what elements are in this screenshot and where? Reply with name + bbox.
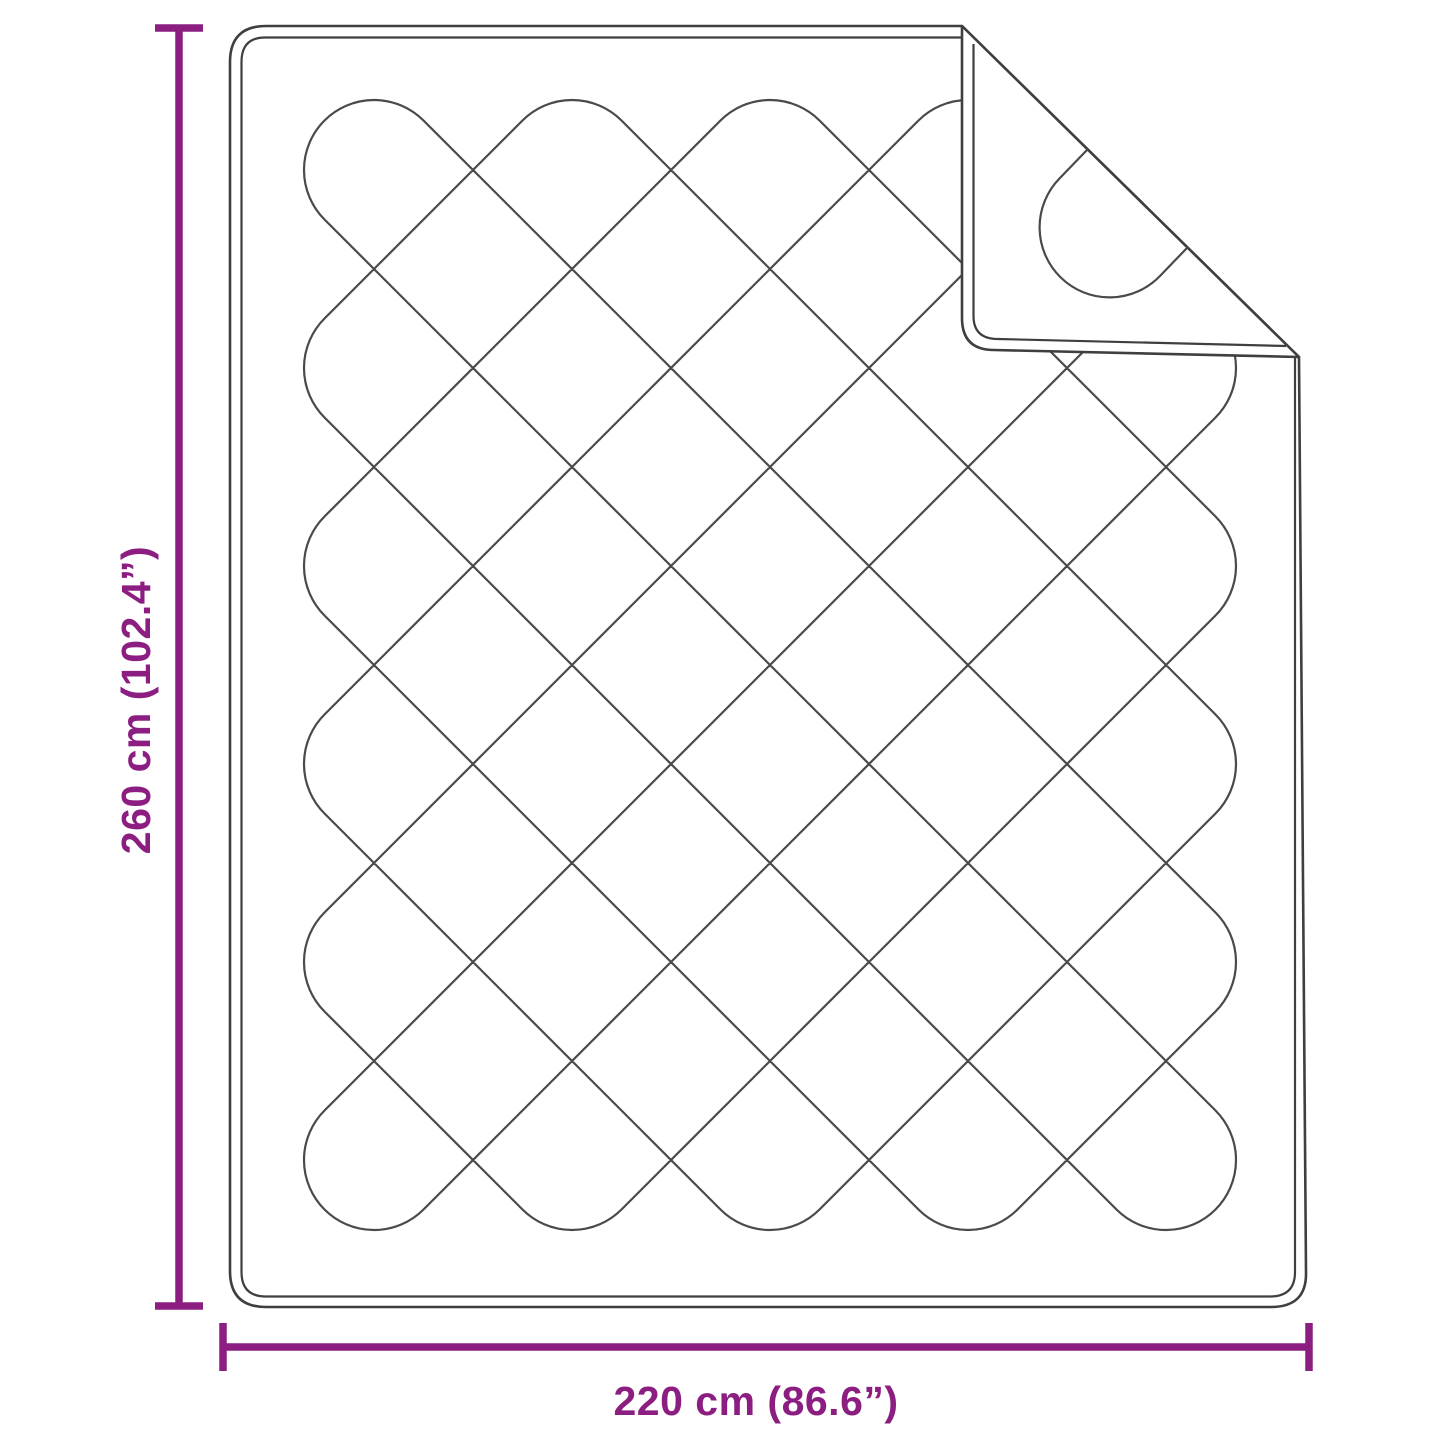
product-dimension-diagram: 260 cm (102.4”) 220 cm (86.6”) [0,0,1445,1445]
height-dimension-label: 260 cm (102.4”) [101,440,171,960]
width-dimension-line [223,1323,1309,1371]
folded-corner [962,26,1299,357]
width-dimension-label: 220 cm (86.6”) [496,1366,1016,1436]
blanket-diagram-canvas [0,0,1445,1445]
